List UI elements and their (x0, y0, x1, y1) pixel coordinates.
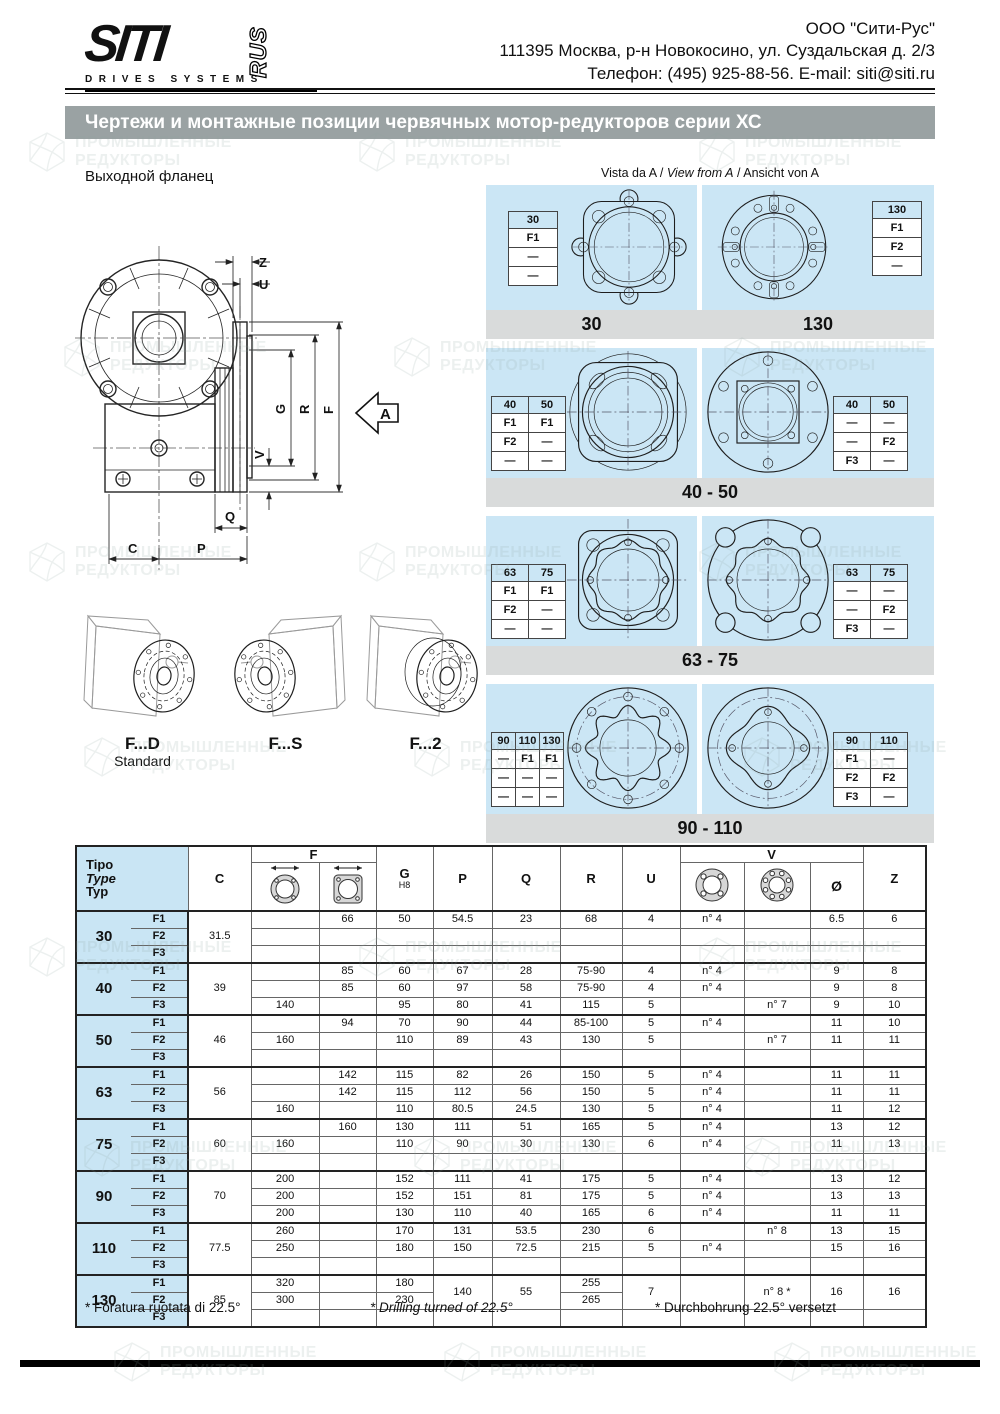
path (700, 142, 734, 161)
value-cell: 110 (376, 1102, 433, 1120)
variant-fs: F...S (218, 612, 353, 753)
path (30, 142, 64, 161)
value-cell (863, 1310, 926, 1328)
circle (780, 871, 785, 876)
value-cell: 24.5 (492, 1102, 560, 1120)
mini-value-cell: — (540, 769, 564, 788)
mini-header-cell: 40 (492, 397, 529, 414)
flange-view-sq4050 (565, 349, 691, 475)
f-round-header (251, 863, 319, 912)
tr: F3— (834, 788, 908, 807)
variant-fs-label: F...S (218, 735, 353, 753)
value-cell (251, 1119, 319, 1137)
value-cell: 75-90 (560, 981, 622, 998)
tr: 130F185320 180140552557 n° 8 *1616 (76, 1275, 926, 1293)
logo-rus-text: RUS (245, 26, 272, 78)
g (30, 133, 64, 171)
value-cell: 230 (560, 1223, 622, 1241)
tr: —— (492, 452, 566, 471)
tr: 90110130 (492, 733, 564, 750)
value-cell (251, 946, 319, 964)
value-cell: n° 4 (680, 1241, 744, 1258)
circle (465, 654, 470, 659)
div (565, 517, 691, 648)
tbody: 30F1—— (509, 212, 558, 286)
value-cell (251, 1050, 319, 1068)
v4-header (680, 863, 744, 912)
mini-value-cell: — (834, 582, 871, 601)
value-cell (251, 1067, 319, 1085)
circle (718, 874, 723, 879)
value-cell (492, 1154, 560, 1172)
value-cell: 4 (622, 911, 680, 929)
value-cell: 250 (251, 1241, 319, 1258)
div (565, 349, 691, 480)
watermark-text: ПРОМЫШЛЕННЫЕРЕДУКТОРЫ (745, 134, 902, 169)
value-cell: 50 (376, 911, 433, 929)
value-cell: n° 4 (680, 1137, 744, 1154)
dim-label-r: R (297, 404, 312, 414)
col-g: GH8 (376, 846, 433, 911)
value-cell (744, 1189, 810, 1206)
tr: F1— (834, 750, 908, 769)
value-cell (319, 1223, 376, 1241)
circle (703, 876, 721, 894)
div: G (377, 867, 433, 881)
value-cell (376, 929, 433, 946)
mini-header-cell: 130 (873, 202, 922, 219)
value-cell: 80.5 (433, 1102, 492, 1120)
value-cell (560, 1310, 622, 1328)
value-cell: 43 (492, 1033, 560, 1050)
circle (202, 279, 218, 295)
value-cell: 54.5 (433, 911, 492, 929)
line (241, 662, 251, 663)
tbody: 6375F1F1F2——— (492, 565, 566, 639)
value-cell: 5 (622, 1102, 680, 1120)
value-cell (680, 946, 744, 964)
value-cell: 13 (810, 1171, 863, 1189)
value-cell: 320 (251, 1275, 319, 1293)
value-cell: 11 (810, 1137, 863, 1154)
value-cell: 5 (622, 1241, 680, 1258)
value-cell: n° 7 (744, 998, 810, 1016)
value-cell (863, 929, 926, 946)
tr: 30F131.5 665054.523684n° 4 6.56 (76, 911, 926, 929)
value-cell (319, 1189, 376, 1206)
view-a-arrow (356, 393, 398, 433)
dim-label-v: V (252, 450, 267, 459)
value-cell: 11 (863, 1067, 926, 1085)
value-cell (810, 946, 863, 964)
flange-variant-cell: F1 (131, 1119, 188, 1137)
company-address: 111395 Москва, р-н Новокосино, ул. Сузда… (499, 40, 935, 62)
panel-caption: 30130 (486, 310, 934, 339)
value-cell: 6 (863, 911, 926, 929)
value-cell: 70 (376, 1015, 433, 1033)
view-caption-it: Vista da A / (601, 166, 667, 180)
value-cell: n° 4 (680, 963, 744, 981)
value-cell: 200 (251, 1189, 319, 1206)
value-cell: 85 (319, 981, 376, 998)
value-cell: 56 (492, 1085, 560, 1102)
mini-value-cell: — (529, 620, 566, 639)
flange-view-c90110a (565, 685, 691, 811)
value-cell: 9 (810, 998, 863, 1016)
value-cell (810, 1258, 863, 1276)
value-cell: 175 (560, 1189, 622, 1206)
mini-value-cell: F1 (509, 229, 558, 248)
value-cell: 72.5 (492, 1241, 560, 1258)
value-cell (376, 1050, 433, 1068)
circle (236, 677, 241, 682)
mini-value-cell: F1 (834, 750, 871, 769)
line (89, 358, 110, 367)
value-cell: 6 (622, 1206, 680, 1224)
value-cell (622, 1154, 680, 1172)
circle (104, 385, 113, 394)
logo-subtitle: DRIVES SYSTEMS (85, 74, 335, 85)
flange-4hole-icon (690, 863, 734, 907)
size-label: 90 (76, 1171, 131, 1223)
value-cell: 90 (433, 1137, 492, 1154)
tr: 90110 (834, 733, 908, 750)
value-cell: n° 4 (680, 1171, 744, 1189)
col-p: P (433, 846, 492, 911)
value-cell (319, 946, 376, 964)
tr: 110F177.5260 17013153.52306 n° 81315 (76, 1223, 926, 1241)
value-cell: 175 (560, 1171, 622, 1189)
value-cell (319, 998, 376, 1016)
value-cell: n° 4 (680, 1085, 744, 1102)
value-cell: 142 (319, 1085, 376, 1102)
value-cell: 5 (622, 1119, 680, 1137)
tr: F1F1 (492, 582, 566, 601)
mini-value-cell: — (871, 452, 908, 471)
circle (786, 888, 791, 893)
value-cell: 6 (622, 1223, 680, 1241)
value-cell (680, 1258, 744, 1276)
ellipse (147, 656, 180, 696)
variant-f2-label: F...2 (358, 735, 493, 753)
value-cell: n° 4 (680, 1102, 744, 1120)
value-cell: 5 (622, 1033, 680, 1050)
div (705, 349, 831, 480)
c-value: 77.5 (188, 1223, 251, 1275)
mini-header-cell: 110 (871, 733, 908, 750)
size-label: 75 (76, 1119, 131, 1171)
div: Typ (86, 885, 188, 899)
polygon (84, 616, 96, 708)
circle (146, 649, 151, 654)
value-cell: 180 (376, 1275, 433, 1293)
line (179, 268, 188, 289)
value-cell (863, 1258, 926, 1276)
size-label: 110 (76, 1223, 131, 1275)
tr: 30 (509, 212, 558, 229)
mini-header-cell: 90 (492, 733, 516, 750)
siti-logo: SITI RUS DRIVES SYSTEMS (85, 16, 335, 92)
circle (440, 704, 445, 709)
value-cell: 130 (560, 1102, 622, 1120)
mini-value-cell: F2 (873, 238, 922, 257)
col-c: C (188, 846, 251, 911)
line (89, 309, 110, 318)
tr: —— (834, 414, 908, 433)
value-cell: 130 (560, 1137, 622, 1154)
value-cell: 13 (810, 1189, 863, 1206)
mini-value-cell: — (873, 257, 922, 276)
flange-variant-cell: F1 (131, 1275, 188, 1293)
logo-main: SITI RUS (85, 16, 335, 74)
value-cell: 67 (433, 963, 492, 981)
polygon (367, 616, 379, 708)
view-caption-en: View from A (667, 166, 734, 180)
circle (355, 878, 359, 882)
value-cell: 5 (622, 1189, 680, 1206)
value-cell: 130 (376, 1206, 433, 1224)
path (30, 543, 64, 581)
value-cell (680, 998, 744, 1016)
dim-label-q: Q (225, 509, 235, 524)
value-cell: 160 (251, 1102, 319, 1120)
tr: —F2 (834, 433, 908, 452)
value-cell: 9 (810, 981, 863, 998)
tr: —F1F1 (492, 750, 564, 769)
polygon (269, 616, 341, 634)
g (129, 636, 198, 716)
flange-view-sq30 (571, 189, 687, 305)
mini-value-cell: — (492, 750, 516, 769)
value-cell (433, 929, 492, 946)
flange-mini-table: 6375F1F1F2——— (491, 564, 566, 639)
span: 30 (486, 310, 697, 339)
circle (135, 670, 140, 675)
value-cell: 165 (560, 1206, 622, 1224)
tr: —— (834, 582, 908, 601)
value-cell: 11 (810, 1102, 863, 1120)
circle (206, 385, 215, 394)
value-cell: 131 (433, 1223, 492, 1241)
polygon (334, 866, 339, 871)
value-cell (251, 1154, 319, 1172)
circle (741, 385, 748, 392)
tr: 40F139 8560672875-904n° 4 98 (76, 963, 926, 981)
variant-fd-drawing (75, 612, 210, 735)
value-cell: 110 (376, 1137, 433, 1154)
tr: F2 (873, 238, 922, 257)
mini-value-cell: — (871, 750, 908, 769)
value-cell (744, 1085, 810, 1102)
tbody: 6375———F2F3— (834, 565, 908, 639)
watermark-text: ПРОМЫШЛЕННЫЕРЕДУКТОРЫ (405, 134, 562, 169)
flange-view-c4050 (705, 349, 831, 475)
panel-caption: 63 - 75 (486, 646, 934, 675)
value-cell: n° 4 (680, 1015, 744, 1033)
g (230, 616, 345, 716)
value-cell: 4 (622, 963, 680, 981)
c-value: 60 (188, 1119, 251, 1171)
circle (809, 227, 817, 235)
watermark-text: ПРОМЫШЛЕННЫЕРЕДУКТОРЫ (75, 134, 232, 169)
tbody: 130F1F2— (873, 202, 922, 276)
value-cell (744, 911, 810, 929)
panel-caption: 90 - 110 (486, 814, 934, 843)
path (47, 947, 64, 976)
value-cell: 160 (251, 1033, 319, 1050)
path (47, 142, 64, 171)
flange-panel: 90110F1—F2F2F3— (702, 684, 934, 814)
flange-mini-table: 4050———F2F3— (833, 396, 908, 471)
value-cell (744, 1050, 810, 1068)
mini-value-cell: F2 (834, 769, 871, 788)
size-label: 40 (76, 963, 131, 1015)
value-cell (622, 929, 680, 946)
value-cell: 200 (251, 1206, 319, 1224)
logo-siti-text: SITI (82, 16, 167, 72)
f-square-header (319, 863, 376, 912)
value-cell: n° 4 (680, 911, 744, 929)
value-cell: 89 (433, 1033, 492, 1050)
path (30, 543, 47, 571)
value-cell (319, 1033, 376, 1050)
flange-panel: 6375———F2F3— (702, 516, 934, 646)
ellipse (405, 638, 461, 706)
dim-label-p: P (197, 541, 206, 556)
value-cell: 115 (560, 998, 622, 1016)
circle (719, 381, 729, 391)
value-cell: 112 (433, 1085, 492, 1102)
flange-variant-cell: F2 (131, 929, 188, 946)
circle (731, 227, 739, 235)
value-cell: 85 (319, 963, 376, 981)
footnote-de: * Durchbohrung 22.5° versetzt (655, 1300, 836, 1315)
drawing-title: Выходной фланец (85, 168, 213, 185)
value-cell: 5 (622, 998, 680, 1016)
circle (808, 433, 818, 443)
value-cell (319, 1241, 376, 1258)
circle (100, 279, 116, 295)
value-cell: 152 (376, 1171, 433, 1189)
mini-header-cell: 110 (516, 733, 540, 750)
page-title: Чертежи и монтажные позиции червячных мо… (65, 106, 935, 139)
dim-label-f: F (321, 406, 336, 414)
value-cell: 11 (810, 1033, 863, 1050)
circle (418, 670, 423, 675)
value-cell: 160 (319, 1119, 376, 1137)
value-cell: 6 (622, 1137, 680, 1154)
mini-value-cell: — (540, 788, 564, 807)
value-cell: 13 (810, 1223, 863, 1241)
value-cell: 5 (622, 1171, 680, 1189)
value-cell: 6.5 (810, 911, 863, 929)
variant-fd-label: F...D (75, 735, 210, 753)
polygon (375, 626, 443, 716)
value-cell: 15 (863, 1223, 926, 1241)
value-cell (492, 1050, 560, 1068)
value-cell: 80 (433, 998, 492, 1016)
value-cell (680, 1050, 744, 1068)
flange-view-c90110b (705, 685, 831, 811)
value-cell (680, 1154, 744, 1172)
value-cell (319, 1293, 376, 1310)
polygon (92, 626, 160, 716)
mini-header-cell: 75 (529, 565, 566, 582)
value-cell: 10 (863, 998, 926, 1016)
mini-value-cell: F1 (492, 414, 529, 433)
path (377, 142, 394, 171)
value-cell: 60 (376, 981, 433, 998)
value-cell: 165 (560, 1119, 622, 1137)
dim-label-u: U (259, 277, 268, 292)
value-cell: 111 (433, 1171, 492, 1189)
tr: ——— (492, 769, 564, 788)
circle (283, 693, 288, 698)
mini-value-cell: — (834, 601, 871, 620)
c-value: 46 (188, 1015, 251, 1067)
mini-header-cell: 63 (834, 565, 871, 582)
flange-variant-cell: F1 (131, 1067, 188, 1085)
value-cell (744, 1171, 810, 1189)
tr: 4050 (492, 397, 566, 414)
flange-variant-cell: F1 (131, 1015, 188, 1033)
tr: F1 (873, 219, 922, 238)
c-value: 70 (188, 1171, 251, 1223)
circle (429, 649, 434, 654)
col-z: Z (863, 846, 926, 911)
company-name: ООО "Сити-Рус" (499, 18, 935, 40)
size-group: 75F160 160130111511655n° 4 1312F2160 110… (76, 1119, 926, 1171)
value-cell (319, 1154, 376, 1172)
circle (277, 649, 282, 654)
value-cell: 90 (433, 1015, 492, 1033)
value-cell (251, 963, 319, 981)
c-value: 56 (188, 1067, 251, 1119)
value-cell (810, 1050, 863, 1068)
ellipse (129, 636, 198, 716)
value-cell (319, 1258, 376, 1276)
output-flange-drawing: Z U G R F V Q C P A (75, 218, 415, 578)
value-cell: 26 (492, 1067, 560, 1085)
circle (288, 670, 293, 675)
value-cell (251, 929, 319, 946)
span: 130 (702, 310, 934, 339)
flange-variant-cell: F1 (131, 963, 188, 981)
value-cell (433, 1050, 492, 1068)
path (47, 552, 64, 581)
value-cell: n° 4 (680, 981, 744, 998)
line (130, 268, 139, 289)
value-cell (744, 929, 810, 946)
circle (780, 894, 785, 899)
flange-variant-cell: F3 (131, 998, 188, 1016)
value-cell (251, 911, 319, 929)
tr: 63F156 14211582261505n° 4 1111 (76, 1067, 926, 1085)
value-cell (560, 1258, 622, 1276)
value-cell (319, 929, 376, 946)
footnote-it: * Foratura ruotata di 22.5° (85, 1300, 241, 1315)
tbody: 4050———F2F3— (834, 397, 908, 471)
value-cell (433, 946, 492, 964)
value-cell (810, 1154, 863, 1172)
value-cell (863, 946, 926, 964)
g (367, 616, 482, 716)
path (30, 938, 64, 976)
value-cell (744, 963, 810, 981)
value-cell: 66 (319, 911, 376, 929)
value-cell (560, 1154, 622, 1172)
circle (292, 896, 296, 900)
